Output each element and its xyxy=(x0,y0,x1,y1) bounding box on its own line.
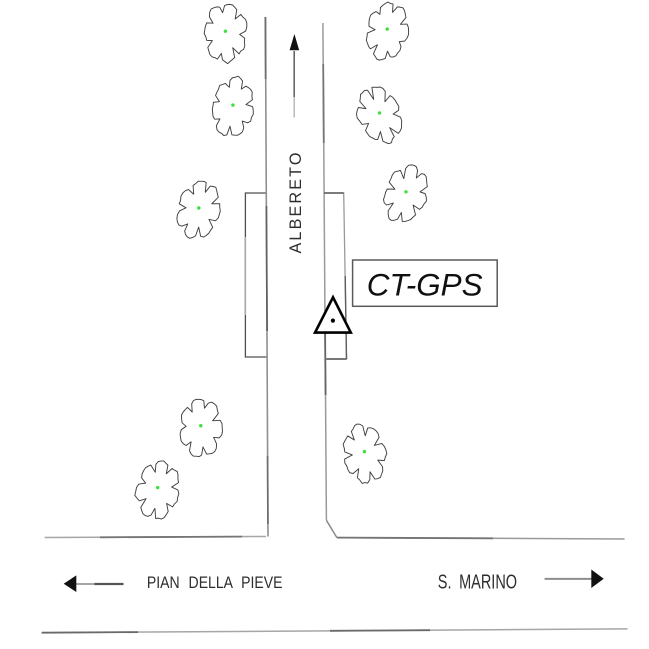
svg-text:CT-GPS: CT-GPS xyxy=(367,268,483,303)
svg-text:ALBERETO: ALBERETO xyxy=(287,153,305,254)
svg-text:S. MARINO: S. MARINO xyxy=(438,571,517,594)
svg-text:PIAN DELLA PIEVE: PIAN DELLA PIEVE xyxy=(147,573,283,592)
